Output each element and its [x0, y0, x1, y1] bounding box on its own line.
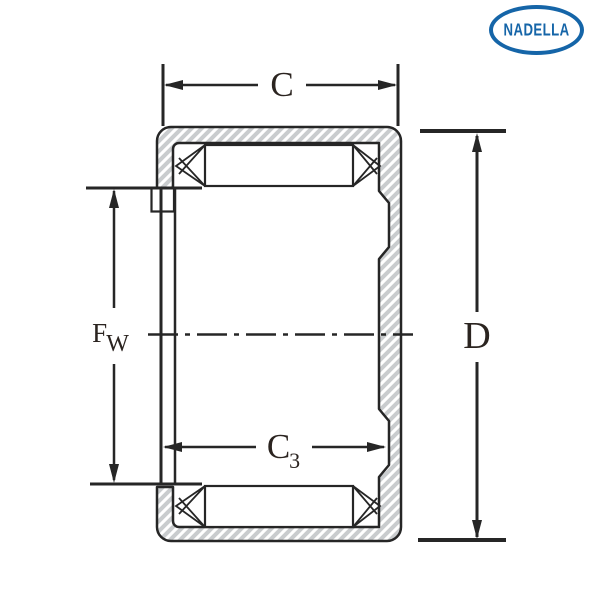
dim-label-d-text: D	[463, 315, 490, 357]
bottom-roller-cage-left	[176, 486, 205, 527]
dim-c-arrow-right	[378, 80, 397, 90]
nadella-logo: NADELLA	[489, 5, 584, 55]
dim-d-arrow-top	[472, 133, 482, 152]
nadella-logo-text: NADELLA	[503, 20, 569, 40]
dim-label-c: C	[270, 67, 293, 102]
dim-label-d: D	[463, 317, 490, 355]
dim-label-fw-main: F	[92, 318, 107, 348]
top-roller-body	[205, 145, 353, 186]
bore-edge-lines	[161, 189, 175, 484]
top-roller-cage-left	[176, 145, 205, 186]
bearing-diagram: C D FW C3 NADELLA	[0, 0, 600, 600]
bottom-roller-body	[205, 486, 353, 527]
dim-c3-arrow-left	[163, 442, 182, 452]
bottom-roller-cage-right	[353, 486, 380, 527]
dim-fw-arrow-top	[109, 189, 119, 208]
dim-label-c3-sub: 3	[289, 448, 300, 473]
dim-label-c3-main: C	[267, 427, 290, 466]
lip-tip	[152, 188, 175, 212]
dim-label-fw: FW	[92, 320, 130, 347]
dim-c-arrow-left	[164, 80, 183, 90]
dim-d-arrow-bottom	[472, 520, 482, 539]
dim-label-c-text: C	[270, 65, 293, 104]
dim-label-c3: C3	[267, 429, 301, 464]
dim-c3-arrow-right	[367, 442, 386, 452]
dim-fw-arrow-bottom	[109, 464, 119, 483]
dim-d	[418, 131, 506, 540]
top-roller-cage-right	[353, 145, 380, 186]
bottom-roller	[176, 486, 380, 527]
bearing-drawing-svg	[0, 0, 600, 600]
top-roller	[176, 145, 380, 186]
dim-label-fw-sub: W	[106, 331, 129, 357]
